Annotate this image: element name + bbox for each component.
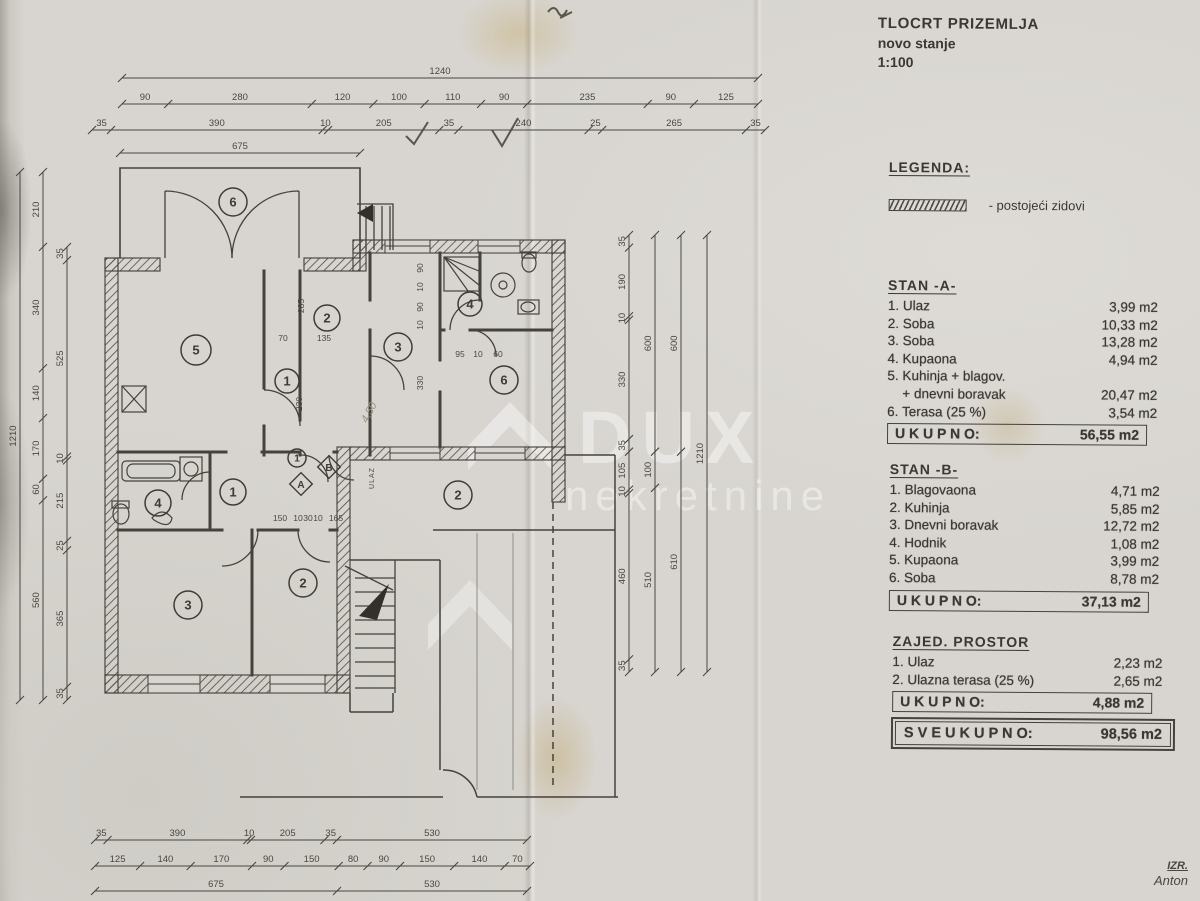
dim-label: 125	[718, 92, 734, 103]
handwritten-checkmarks	[406, 8, 572, 146]
dim-label: 105	[617, 463, 628, 479]
area-row: 5. Kupaona3,99 m2	[889, 552, 1159, 571]
dim-label: 35	[325, 828, 336, 839]
dim-label: 210	[31, 202, 42, 218]
dim-label: 125	[110, 854, 126, 865]
dim-chain-top2: 902801201001109023590125	[118, 92, 762, 108]
area-row: 1. Ulaz3,99 m2	[888, 298, 1158, 317]
dim-label: 235	[580, 92, 596, 103]
dim-chain-bot3: 675530	[91, 879, 531, 895]
section-stan-a: STAN -A- 1. Ulaz3,99 m22. Soba10,33 m23.…	[887, 277, 1158, 446]
room-area-value: 13,28 m2	[1101, 335, 1157, 353]
room-number: 3	[394, 340, 401, 355]
dim-label: 80	[348, 854, 359, 865]
drawing-scale: 1:100	[878, 54, 1039, 71]
page-title: TLOCRT PRIZEMLJA	[878, 15, 1039, 33]
floor-plan-drawing: DUX nekretnine	[0, 0, 1200, 901]
inner-dim-label: 90	[415, 302, 425, 312]
room-number-circle: 4	[458, 292, 482, 316]
dim-label: 600	[669, 335, 680, 351]
inner-dim-label: 95	[455, 349, 465, 359]
total-box-stan-a: U K U P N O: 56,55 m2	[887, 423, 1147, 446]
room-number-circle: 5	[181, 335, 211, 365]
room-number-circle: 2	[314, 305, 340, 331]
section-stan-b: STAN -B- 1. Blagovaona4,71 m22. Kuhinja5…	[889, 461, 1160, 612]
room-number-circle: 4	[145, 490, 171, 516]
total-box-stan-b: U K U P N O: 37,13 m2	[889, 590, 1149, 613]
area-rows: 1. Blagovaona4,71 m22. Kuhinja5,85 m23. …	[889, 482, 1160, 589]
scanned-floor-plan-page: { "header": {"title": "TLOCRT PRIZEMLJA"…	[0, 0, 1200, 901]
dim-label: 600	[643, 335, 654, 351]
room-number-circle: 3	[174, 591, 202, 619]
legend-wall-label: - postojeći zidovi	[989, 198, 1085, 214]
room-label: 3. Dnevni boravak	[889, 517, 998, 535]
total-box-zajed: U K U P N O: 4,88 m2	[892, 691, 1152, 714]
room-area-value: 3,99 m2	[1110, 554, 1159, 572]
dim-label: 675	[208, 879, 224, 890]
dim-label: 35	[617, 236, 628, 247]
inner-dim-label: 165	[329, 513, 343, 523]
dim-label: 280	[232, 92, 248, 103]
handwritten-note: 4,50	[359, 400, 380, 425]
dim-label: 530	[424, 879, 440, 890]
dim-label: 240	[516, 118, 532, 129]
dim-label: 1210	[8, 425, 19, 446]
dim-label: 90	[666, 92, 677, 103]
room-area-value: 8,78 m2	[1110, 572, 1159, 590]
room-label: 1. Ulaz	[888, 298, 930, 316]
room-area-value: 12,72 m2	[1103, 519, 1159, 537]
dim-label: 35	[55, 248, 66, 259]
area-row: 1. Ulaz2,23 m2	[892, 654, 1162, 673]
inner-dim-label: 285	[296, 299, 306, 313]
room-label: 5. Kuhinja + blagov.	[887, 368, 1005, 386]
inner-dim-label: 330	[415, 376, 425, 390]
room-number: 2	[323, 311, 330, 326]
room-label: 1. Ulaz	[892, 654, 934, 672]
inner-dim-label: 10	[293, 513, 303, 523]
dim-label: 35	[55, 688, 66, 699]
dim-label: 390	[209, 118, 225, 129]
room-number: 5	[192, 343, 199, 358]
inner-dim-label: 10	[473, 349, 483, 359]
dim-chain-top3: 3539010205352402526535	[88, 118, 769, 134]
room-area-value: 4,71 m2	[1111, 484, 1160, 502]
inner-dim-label: 135	[317, 333, 331, 343]
total-label: U K U P N O:	[900, 693, 985, 710]
area-rows: 1. Ulaz2,23 m22. Ulazna terasa (25 %)2,6…	[892, 654, 1162, 691]
inner-dim-label: 10	[313, 513, 323, 523]
total-value: 56,55 m2	[1080, 426, 1139, 442]
dim-label: 510	[643, 572, 654, 588]
room-label: 1. Blagovaona	[890, 482, 976, 500]
inner-dim-label: 230	[294, 397, 304, 411]
area-row: 2. Soba10,33 m2	[888, 316, 1158, 335]
dim-label: 35	[96, 118, 107, 129]
section-zajed-prostor: ZAJED. PROSTOR 1. Ulaz2,23 m22. Ulazna t…	[892, 633, 1163, 714]
area-row: 6. Soba8,78 m2	[889, 570, 1159, 589]
dim-label: 70	[512, 854, 523, 865]
dim-label: 675	[232, 141, 248, 152]
dim-chain-left2: 21034014017060560	[31, 168, 47, 704]
dim-label: 35	[617, 440, 628, 451]
total-label: U K U P N O:	[895, 425, 980, 442]
section-heading: STAN -B-	[890, 461, 1160, 479]
dim-label: 90	[379, 854, 390, 865]
room-area-value: 3,54 m2	[1108, 405, 1157, 423]
dim-label: 140	[157, 854, 173, 865]
dim-label: 100	[643, 462, 654, 478]
dim-label: 140	[472, 854, 488, 865]
dim-chain-left1: 1210	[8, 168, 24, 704]
total-value: 4,88 m2	[1093, 695, 1144, 711]
room-number-circle: 3	[384, 333, 412, 361]
dim-label: 330	[617, 372, 628, 388]
watermark-text-2: nekretnine	[565, 472, 831, 519]
area-row: 3. Soba13,28 m2	[888, 333, 1158, 352]
grand-total-label: S V E U K U P N O:	[904, 725, 1033, 742]
page-subtitle: novo stanje	[878, 35, 1039, 52]
dim-label: 10	[55, 453, 66, 464]
inner-dim-label: 60	[493, 349, 503, 359]
room-area-value: 5,85 m2	[1111, 501, 1160, 519]
total-value: 37,13 m2	[1082, 593, 1141, 609]
grand-total-box: S V E U K U P N O: 98,56 m2	[895, 721, 1171, 747]
room-number-circle: 6	[219, 188, 247, 216]
dim-label: 530	[424, 828, 440, 839]
area-row: 5. Kuhinja + blagov.	[887, 368, 1157, 387]
marker-letter: B	[325, 463, 332, 474]
room-number: 4	[154, 496, 162, 511]
dim-label: 150	[419, 854, 435, 865]
dim-label: 265	[666, 118, 682, 129]
inner-dim-label: 90	[415, 263, 425, 273]
room-area-value: 2,23 m2	[1114, 656, 1163, 674]
room-label: 4. Kupaona	[888, 351, 957, 369]
dim-label: 35	[96, 828, 107, 839]
dim-label: 525	[55, 350, 66, 366]
signature-name: Anton	[1154, 873, 1188, 888]
area-rows: 1. Ulaz3,99 m22. Soba10,33 m23. Soba13,2…	[887, 298, 1158, 423]
area-row: 1. Blagovaona4,71 m2	[890, 482, 1160, 501]
room-number: 2	[299, 576, 306, 591]
stairs-bottom	[345, 560, 395, 693]
dim-label: 365	[55, 611, 66, 627]
inner-dim-label: 70	[278, 333, 288, 343]
room-label: 4. Hodnik	[889, 535, 946, 553]
dim-label: 90	[140, 92, 151, 103]
room-number: 2	[454, 488, 461, 503]
dim-label: 1240	[429, 66, 450, 77]
dim-label: 205	[376, 118, 392, 129]
dimension-chains: 1240902801201001109023590125353901020535…	[8, 66, 769, 895]
dim-label: 215	[55, 493, 66, 509]
area-row: 6. Terasa (25 %)3,54 m2	[887, 404, 1157, 423]
dim-label: 90	[499, 92, 510, 103]
dim-label: 140	[31, 385, 42, 401]
legend-heading: LEGENDA:	[889, 159, 1085, 176]
dim-label: 460	[617, 568, 628, 584]
area-row: 2. Ulazna terasa (25 %)2,65 m2	[892, 672, 1162, 691]
room-number: 1	[229, 485, 236, 500]
title-block: TLOCRT PRIZEMLJA novo stanje 1:100	[878, 15, 1040, 71]
area-row: + dnevni boravak20,47 m2	[887, 386, 1157, 405]
dim-label: 190	[617, 274, 628, 290]
room-label: 2. Soba	[888, 316, 935, 334]
dim-label: 205	[280, 828, 296, 839]
room-number: 1	[294, 454, 300, 465]
watermark-text-1: DUX	[578, 396, 764, 479]
dim-label: 170	[213, 854, 229, 865]
dim-label: 110	[445, 92, 460, 103]
room-label: 3. Soba	[888, 333, 935, 351]
dim-label: 100	[391, 92, 407, 103]
area-row: 4. Hodnik1,08 m2	[889, 535, 1159, 554]
dim-label: 610	[669, 554, 680, 570]
inner-dim-label: 150	[273, 513, 287, 523]
section-marker-A: A	[290, 473, 313, 496]
room-label: 6. Soba	[889, 570, 936, 588]
room-number: 1	[283, 374, 290, 389]
room-number: 3	[184, 598, 191, 613]
room-number-circle: 2	[289, 569, 317, 597]
inner-dim-label: 10	[415, 320, 425, 330]
section-heading: ZAJED. PROSTOR	[893, 633, 1163, 651]
room-label: 2. Ulazna terasa (25 %)	[892, 672, 1034, 691]
dim-label: 25	[55, 540, 66, 551]
existing-wall-hatch-swatch	[889, 198, 967, 211]
ulaz-label: ULAZ	[369, 467, 376, 489]
dim-label: 150	[304, 854, 320, 865]
dim-label: 35	[617, 660, 628, 671]
section-heading: STAN -A-	[888, 277, 1158, 295]
dim-label: 35	[750, 118, 761, 129]
terrace-outline	[120, 168, 360, 258]
total-label: U K U P N O:	[897, 592, 982, 609]
dim-label: 390	[170, 828, 186, 839]
dim-label: 60	[31, 484, 42, 495]
inner-dim-label: 30	[303, 513, 313, 523]
dim-label: 10	[320, 118, 331, 129]
room-number: 6	[500, 373, 507, 388]
dim-chain-bot2: 12514017090150809015014070	[91, 854, 534, 870]
dim-label: 120	[335, 92, 351, 103]
room-label: 5. Kupaona	[889, 552, 958, 570]
dim-chain-bot1: 353901020535530	[91, 828, 531, 844]
dim-label: 340	[31, 300, 42, 316]
room-area-value: 20,47 m2	[1101, 387, 1157, 405]
room-number: 6	[229, 195, 236, 210]
legend: LEGENDA: - postojeći zidovi	[889, 159, 1085, 213]
room-label: 6. Terasa (25 %)	[887, 404, 986, 422]
room-area-value: 1,08 m2	[1110, 536, 1159, 554]
area-row: 2. Kuhinja5,85 m2	[889, 500, 1159, 519]
dim-label: 1210	[695, 443, 706, 464]
dim-label: 170	[31, 441, 42, 457]
marker-letter: A	[297, 480, 304, 491]
room-area-value: 4,94 m2	[1109, 352, 1158, 370]
room-number-circle: 6	[490, 366, 518, 394]
room-label: + dnevni boravak	[887, 386, 1005, 404]
room-area-value: 10,33 m2	[1101, 317, 1157, 335]
signature-heading: IZR.	[1154, 860, 1188, 872]
room-label: 2. Kuhinja	[889, 500, 949, 518]
dim-label: 35	[444, 118, 455, 129]
signature-block: IZR. Anton	[1154, 860, 1188, 888]
inner-dim-label: 10	[415, 282, 425, 292]
room-area-value: 2,65 m2	[1113, 673, 1162, 691]
dim-label: 90	[263, 854, 274, 865]
room-number: 4	[466, 297, 474, 312]
room-number-circle: 1	[275, 369, 299, 393]
dim-chain-top1: 1240	[118, 66, 762, 82]
area-row: 4. Kupaona4,94 m2	[888, 351, 1158, 370]
area-row: 3. Dnevni boravak12,72 m2	[889, 517, 1159, 536]
room-area-value: 3,99 m2	[1109, 300, 1158, 318]
dim-chain-left3: 35525102152536535	[55, 243, 71, 704]
dim-label: 25	[590, 118, 601, 129]
dim-label: 560	[31, 592, 42, 608]
room-number-circle: 2	[444, 481, 472, 509]
room-number-circle: 1	[220, 479, 246, 505]
watermark-logo: DUX nekretnine	[428, 396, 831, 650]
dim-chain-top4: 675	[116, 141, 364, 157]
grand-total-value: 98,56 m2	[1101, 726, 1162, 742]
